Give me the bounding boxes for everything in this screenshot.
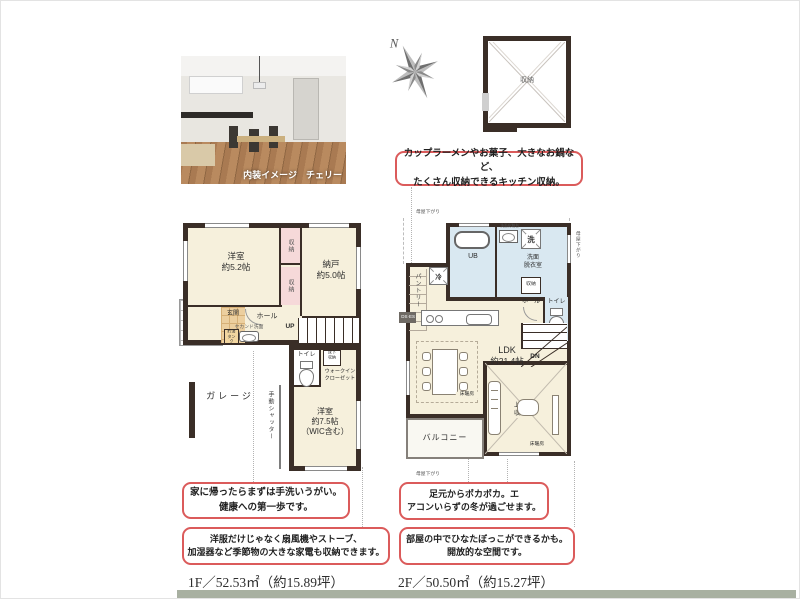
f1-second-basin-fixture [239, 331, 259, 342]
attic-wall-step [483, 124, 517, 132]
f2-floor-heating-label: 床暖房 [456, 392, 478, 398]
f2-chair [422, 367, 431, 376]
f2-chair [459, 382, 468, 391]
f2-window [406, 361, 410, 395]
f2-sink-icon [466, 314, 492, 325]
f2-chair [459, 367, 468, 376]
f1-window [183, 241, 188, 281]
f2-window [567, 235, 571, 263]
f1-nando-size: 約5.0帖 [305, 270, 357, 281]
f2-vanity-label: 洗面化粧台 [500, 224, 517, 229]
f2-powder-label: 洗面 脱衣室 [517, 255, 549, 271]
f2-vanity-fixture [499, 230, 518, 243]
f1-window [305, 466, 347, 471]
compass-north-label: N [389, 37, 399, 51]
f2-hall-label: ホール [517, 299, 545, 307]
f1-entrance-label: 玄関 [221, 311, 245, 319]
photo-door [293, 78, 319, 140]
callout-floor-heating: 足元からポカポカ。エ アコンいらずの冬が過ごせます。 [399, 482, 549, 520]
f1-window [205, 223, 249, 228]
f2-chair [422, 352, 431, 361]
callout-handwash: 家に帰ったらまずは手洗いうがい。 健康への第一歩です。 [182, 482, 350, 519]
attic-storage-label: 収納 [513, 77, 541, 86]
f1-shutter-line [279, 385, 281, 469]
floor1-plan: 洋室 約5.2帖 収納 収納 納戸 約5.0帖 玄関 ホール セカンド洗面 貯湯… [181, 219, 367, 471]
f2-stove-burner-icon [435, 315, 443, 323]
f2-tv-board [552, 395, 559, 435]
photo-bench [181, 144, 215, 166]
footer-bar [177, 590, 796, 598]
f2-bathtub-icon [454, 231, 490, 249]
f1-up-label: UP [281, 323, 299, 331]
f1-nando-name: 納戸 [305, 259, 357, 270]
callout-heating-line2: アコンいらずの冬が過ごせます。 [401, 501, 547, 515]
leader-line-handwash [253, 351, 254, 482]
f1-toilet-room: トイレ [294, 350, 321, 387]
callout-sunny-line1: 部屋の中でひなたぼっこができるかも。 [401, 533, 573, 547]
f1-closet-upper-label: 収納 [286, 239, 295, 253]
f2-low-table [517, 399, 539, 416]
f2-ub-label: UB [461, 253, 485, 262]
f2-balcony: バルコニー [406, 418, 484, 459]
f2-duct-label: DS·ES [401, 313, 415, 321]
callout-handwash-line1: 家に帰ったらまずは手洗いうがい。 [184, 486, 348, 500]
f1-wic-line2: クローゼット [324, 376, 356, 383]
f1-bedroom75-size: 約7.5帖 [293, 417, 357, 427]
f2-balcony-label: バルコニー [408, 433, 482, 443]
f1-tank-line2: タンク [227, 335, 236, 345]
callout-kitchen-line2: たくさん収納できるキッチン収納。 [397, 176, 581, 190]
leader-line-heating [507, 459, 508, 482]
f1-closet-lower: 収納 [281, 267, 300, 305]
f1-garage-wall [189, 382, 195, 438]
f2-powder-line1: 洗面 [517, 255, 549, 263]
photo-dining-table [237, 136, 285, 142]
leader-line-heating [468, 459, 469, 482]
f1-bedroom52-name: 洋室 [193, 251, 279, 262]
f1-hall-label: ホール [247, 313, 287, 322]
f1-bedroom75-name: 洋室 [293, 407, 357, 417]
f2-sofa [488, 381, 501, 435]
f1-tank-label: 貯湯 タンク [227, 330, 236, 345]
f1-bedroom52-size: 約5.2帖 [193, 262, 279, 273]
leader-line-sunny [574, 461, 575, 527]
attic-opening [482, 93, 489, 111]
callout-kitchen-line1: カップラーメンやお菓子、大きなお鍋など、 [397, 147, 581, 176]
f1-bedroom75-label: 洋室 約7.5帖 （WIC含む） [293, 407, 357, 437]
f1-toilet-tank-icon [300, 361, 313, 369]
f1-tank-box: 貯湯 タンク [224, 329, 239, 344]
f2-fridge-label: 冷 [434, 271, 443, 281]
f2-moya-top-label: 母屋下がり [410, 210, 447, 216]
f1-toilet-bowl-icon [299, 369, 314, 387]
f2-kitchen-counter [421, 310, 499, 326]
f2-fridge-box: 冷 [429, 267, 448, 285]
callout-sunny-space: 部屋の中でひなたぼっこができるかも。 開放的な空間です。 [399, 527, 575, 565]
f1-nando-label: 納戸 約5.0帖 [305, 259, 357, 280]
f2-closet-label: 収納 [524, 282, 538, 288]
compass-rose-icon: N [384, 35, 446, 103]
callout-heating-line1: 足元からポカポカ。エ [401, 488, 547, 502]
f1-window [309, 223, 349, 228]
f2-toilet-label: トイレ [545, 299, 568, 307]
callout-seasonal-storage: 洋服だけじゃなく扇風機やストーブ、 加湿器など季節物の大きな家電も収納できます。 [182, 527, 390, 565]
f1-underfloor-label: 床下 収納 [327, 351, 338, 360]
f2-dn-label: DN [525, 353, 545, 361]
photo-pendant-lamp [253, 82, 266, 89]
f1-stairs-up [298, 318, 359, 343]
f2-moya-left-line [403, 218, 404, 264]
f1-closet-lower-label: 収納 [286, 279, 295, 293]
photo-ceiling [181, 56, 346, 76]
f1-wic-line1: ウォークイン [324, 369, 356, 376]
photo-caption: 内装イメージ チェリー [243, 170, 342, 181]
flyer-page: 内装イメージ チェリー N [0, 0, 800, 599]
f2-powder-line2: 脱衣室 [517, 263, 549, 271]
f1-underfloor-box: 床下 収納 [323, 350, 341, 366]
f2-stove-burner-icon [426, 315, 434, 323]
f1-partition [300, 228, 302, 316]
f1-garage-label: ガレージ [195, 391, 265, 402]
floor2-plan: 母屋下がり 母屋下がり UB 洗面化粧台 洗 洗面 脱衣室 収納 ホール トイ [399, 211, 581, 467]
f2-duct-space: DS·ES [399, 312, 416, 323]
f2-floor-heating-label: 床暖房 [526, 442, 548, 448]
callout-seasonal-line1: 洋服だけじゃなく扇風機やストーブ、 [184, 533, 388, 547]
interior-photo: 内装イメージ チェリー [181, 56, 346, 184]
f2-washer-box: 洗 [521, 229, 541, 249]
f2-dining-table [432, 349, 458, 395]
f1-bedroom75-note: （WIC含む） [293, 427, 357, 437]
f2-toilet-tank-icon [550, 308, 563, 316]
f1-wic-label: ウォークイン クローゼット [324, 369, 356, 382]
attic-plan: 収納 [479, 31, 577, 135]
floor2-area-label: 2F／50.50㎡（約15.27坪） [398, 571, 554, 591]
f2-moya-right-label: 母屋下がり [574, 231, 581, 276]
callout-kitchen-storage: カップラーメンやお菓子、大きなお鍋など、 たくさん収納できるキッチン収納。 [395, 151, 583, 186]
f2-chair [459, 352, 468, 361]
callout-seasonal-line2: 加湿器など季節物の大きな家電も収納できます。 [184, 546, 388, 560]
f2-window [459, 223, 489, 227]
f1-closet-upper: 収納 [281, 228, 300, 265]
f1-tank-line1: 貯湯 [227, 330, 236, 335]
leader-line-seasonal [362, 467, 363, 527]
f1-bedroom52-label: 洋室 約5.2帖 [193, 251, 279, 272]
f2-washer-label: 洗 [526, 234, 536, 245]
callout-sunny-line2: 開放的な空間です。 [401, 546, 573, 560]
f1-toilet-label: トイレ [294, 352, 319, 360]
f2-chair [422, 382, 431, 391]
f2-moya-bottom-label: 母屋下がり [410, 472, 447, 478]
floor1-area-label: 1F／52.53㎡（約15.89坪） [188, 571, 344, 591]
f1-underfloor-line2: 収納 [327, 355, 338, 359]
f1-shutter-label: 手動シャッター [266, 391, 275, 461]
photo-upper-cabinet [189, 76, 243, 94]
f2-closet-box: 収納 [521, 277, 541, 294]
f2-partition [495, 227, 497, 297]
photo-pendant-cord [259, 56, 260, 82]
callout-handwash-line2: 健康への第一歩です。 [184, 501, 348, 515]
